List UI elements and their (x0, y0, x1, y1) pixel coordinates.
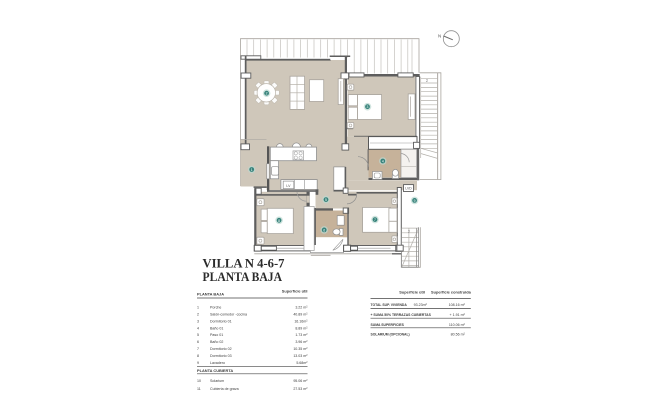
svg-text:11: 11 (197, 387, 201, 391)
svg-text:2: 2 (197, 313, 199, 317)
svg-text:7: 7 (197, 347, 199, 351)
svg-text:3: 3 (197, 320, 199, 324)
svg-text:Superficie construida: Superficie construida (431, 290, 472, 295)
svg-text:6: 6 (197, 340, 199, 344)
svg-text:80.56 m²: 80.56 m² (451, 333, 466, 337)
svg-text:95.06 m²: 95.06 m² (293, 379, 308, 383)
svg-text:Superficie útil: Superficie útil (399, 290, 425, 295)
svg-text:5: 5 (197, 333, 199, 337)
svg-text:Baño 02: Baño 02 (210, 340, 223, 344)
svg-text:2: 2 (266, 92, 268, 96)
svg-text:Porche: Porche (210, 306, 221, 310)
svg-text:SUMA SUPERFICIES: SUMA SUPERFICIES (371, 323, 405, 327)
svg-text:8: 8 (278, 219, 280, 223)
svg-text:6: 6 (323, 228, 325, 232)
svg-text:16.16m²: 16.16m² (294, 320, 308, 324)
svg-text:Dormitorio 03: Dormitorio 03 (210, 354, 232, 358)
svg-text:110.06 m²: 110.06 m² (449, 323, 466, 327)
svg-text:Cubierta de grava: Cubierta de grava (210, 387, 239, 391)
svg-text:4: 4 (197, 327, 199, 331)
svg-text:3.96 m²: 3.96 m² (295, 340, 308, 344)
svg-text:27.53 m²: 27.53 m² (293, 387, 308, 391)
svg-text:8: 8 (197, 354, 199, 358)
svg-text:N: N (438, 34, 441, 39)
svg-text:3.22 m²: 3.22 m² (295, 306, 308, 310)
svg-text:LVD: LVD (405, 187, 412, 191)
svg-text:Baño 01: Baño 01 (210, 327, 223, 331)
svg-text:4: 4 (382, 160, 384, 164)
svg-text:Dormitorio 01: Dormitorio 01 (210, 320, 232, 324)
svg-text:Dormitorio 02: Dormitorio 02 (210, 347, 232, 351)
svg-text:8.89 m²: 8.89 m² (295, 327, 308, 331)
svg-text:TOTAL SUP. VIVIENDA: TOTAL SUP. VIVIENDA (371, 303, 408, 307)
svg-text:1: 1 (197, 306, 199, 310)
svg-text:PLANTA CUBIERTA: PLANTA CUBIERTA (197, 368, 233, 373)
svg-text:Lavadero: Lavadero (210, 361, 225, 365)
svg-text:Solarium: Solarium (210, 379, 224, 383)
svg-text:7: 7 (374, 218, 376, 222)
svg-text:9: 9 (197, 361, 199, 365)
svg-text:9: 9 (414, 199, 416, 203)
svg-text:+ 1.91 m²: + 1.91 m² (450, 313, 466, 317)
svg-text:108.16 m²: 108.16 m² (449, 303, 466, 307)
svg-text:40.89 m²: 40.89 m² (293, 313, 308, 317)
svg-text:LV: LV (286, 184, 291, 188)
svg-text:+ SUMA 50% TERRAZAS CUBIERTAS: + SUMA 50% TERRAZAS CUBIERTAS (371, 313, 432, 317)
svg-text:5: 5 (325, 198, 327, 202)
svg-text:PLANTA BAJA: PLANTA BAJA (197, 292, 224, 297)
svg-text:Salón-comedor -cocina: Salón-comedor -cocina (210, 313, 247, 317)
svg-text:1: 1 (251, 168, 253, 172)
svg-text:93.23m²: 93.23m² (414, 303, 428, 307)
svg-text:Superficie útil: Superficie útil (282, 289, 308, 294)
svg-text:10.35 m²: 10.35 m² (293, 347, 308, 351)
svg-text:10: 10 (197, 379, 201, 383)
svg-text:5.68m²: 5.68m² (296, 361, 308, 365)
svg-text:SOLARIUM (OPCIONAL): SOLARIUM (OPCIONAL) (371, 333, 410, 337)
svg-text:13.03 m²: 13.03 m² (293, 354, 308, 358)
svg-text:PLANTA BAJA: PLANTA BAJA (203, 270, 283, 284)
svg-text:1.73 m²: 1.73 m² (295, 333, 308, 337)
svg-text:3: 3 (367, 105, 369, 109)
svg-text:Paso 01: Paso 01 (210, 333, 223, 337)
svg-text:VILLA N 4-6-7: VILLA N 4-6-7 (203, 256, 285, 270)
